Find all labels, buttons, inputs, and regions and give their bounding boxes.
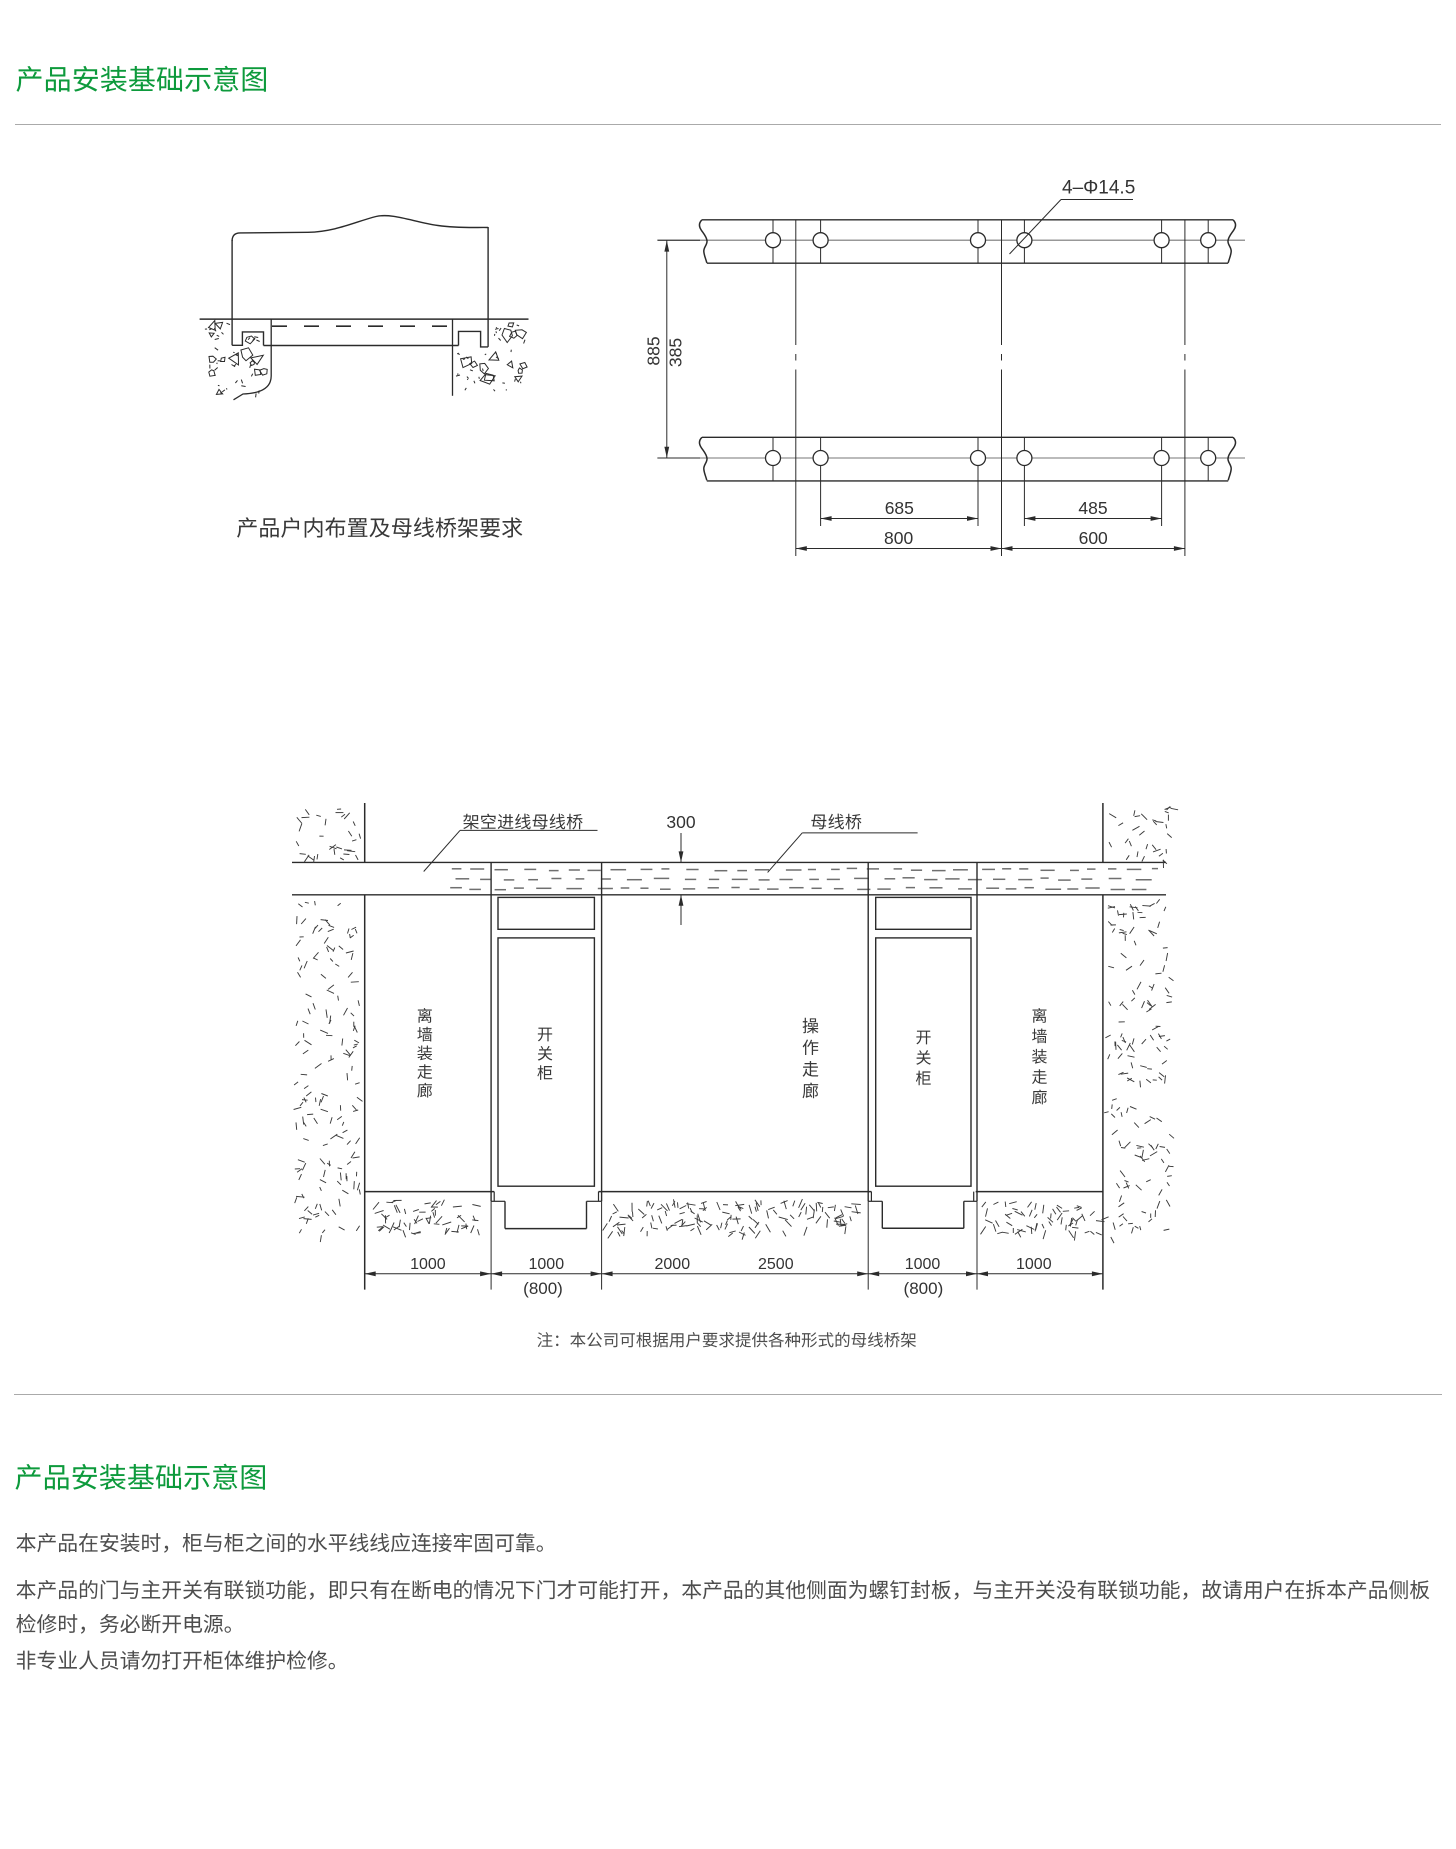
svg-text:600: 600	[1079, 528, 1108, 548]
svg-text:385: 385	[666, 338, 686, 367]
svg-text:300: 300	[666, 812, 695, 832]
svg-text:1000: 1000	[529, 1256, 565, 1273]
svg-text:2500: 2500	[758, 1256, 794, 1273]
svg-text:800: 800	[884, 528, 913, 548]
svg-text:1000: 1000	[905, 1256, 941, 1273]
svg-text:(800): (800)	[523, 1279, 563, 1298]
svg-text:2000: 2000	[655, 1256, 691, 1273]
svg-text:1000: 1000	[410, 1256, 446, 1273]
svg-text:4–Φ14.5: 4–Φ14.5	[1062, 178, 1135, 199]
svg-text:1000: 1000	[1016, 1256, 1052, 1273]
svg-text:885: 885	[644, 336, 664, 365]
svg-text:(800): (800)	[904, 1279, 944, 1298]
svg-text:685: 685	[885, 498, 914, 518]
svg-text:485: 485	[1078, 498, 1107, 518]
